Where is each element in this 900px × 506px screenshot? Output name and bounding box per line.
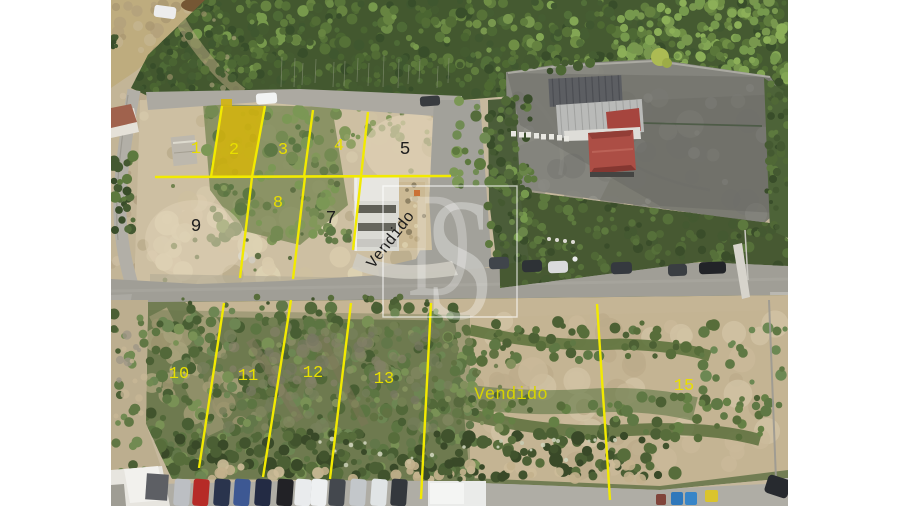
svg-text:8: 8 (273, 194, 283, 213)
svg-text:7: 7 (326, 209, 337, 229)
svg-text:5: 5 (400, 140, 411, 160)
svg-text:S: S (425, 162, 495, 356)
svg-text:15: 15 (674, 377, 694, 396)
svg-text:1: 1 (191, 140, 201, 159)
svg-text:9: 9 (191, 217, 202, 237)
svg-text:10: 10 (169, 365, 189, 384)
svg-text:4: 4 (334, 137, 344, 156)
svg-text:13: 13 (374, 370, 394, 389)
svg-text:12: 12 (303, 364, 323, 383)
svg-text:2: 2 (229, 141, 239, 160)
svg-text:Vendido: Vendido (474, 385, 548, 405)
svg-text:11: 11 (238, 367, 258, 386)
svg-text:3: 3 (278, 141, 288, 160)
